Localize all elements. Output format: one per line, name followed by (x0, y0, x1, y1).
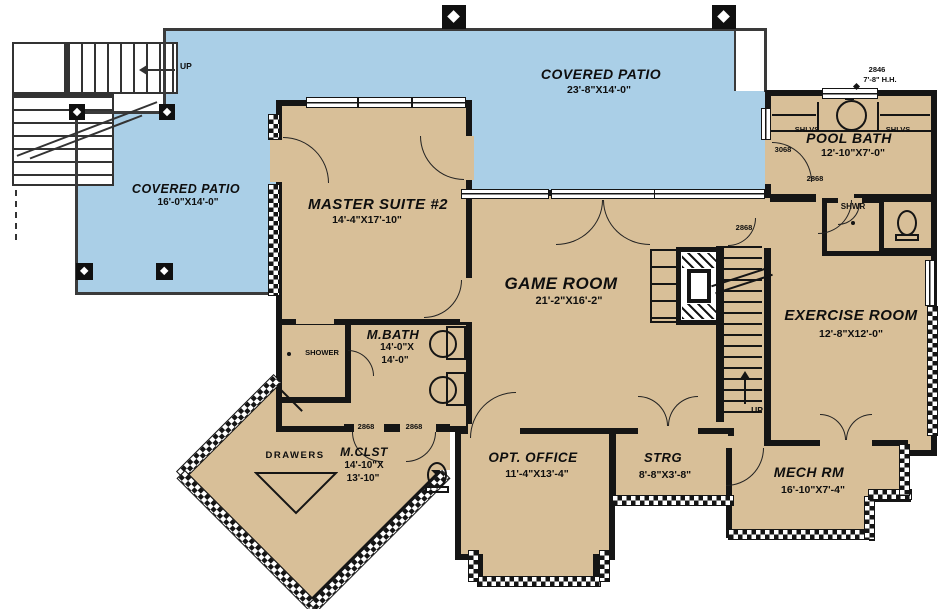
label-storage: STRG (644, 451, 682, 464)
floor-plan: UP (0, 0, 950, 609)
opening-storage-doors (638, 426, 698, 444)
wall-stub (384, 424, 400, 432)
door-size-label: 3068 (775, 146, 792, 154)
window (822, 88, 878, 99)
shower-head-icon (287, 352, 291, 356)
dims-master-bath-1: 14'-0"X (380, 343, 414, 353)
vanity-divider (877, 102, 879, 130)
column-post (69, 104, 85, 120)
fireplace-hatch (682, 304, 716, 319)
toilet-icon (427, 462, 447, 488)
patio-corner-notch (734, 31, 767, 91)
label-shlvs-right: SHLVS (886, 126, 910, 134)
window (653, 189, 765, 199)
dims-master-bath-2: 14'-0" (381, 356, 408, 366)
opening-master-left-door (270, 140, 284, 182)
checker-wall (477, 576, 601, 587)
stair-landing (12, 42, 66, 94)
toilet-icon (425, 486, 449, 493)
window (306, 97, 466, 108)
mech-corner-cut (869, 496, 911, 541)
drain-icon (851, 221, 855, 225)
fireplace-box (687, 269, 711, 303)
up-arrow-icon (740, 371, 750, 379)
dims-storage: 8'-8"X3'-8" (639, 470, 691, 481)
checker-wall (268, 114, 280, 140)
up-label: UP (180, 62, 192, 71)
door-size-label: 2868 (736, 224, 753, 232)
door-size-label: 2868 (406, 423, 423, 431)
label-master-bath: M.BATH (367, 328, 420, 341)
checker-wall (468, 550, 479, 582)
checker-wall (864, 496, 875, 540)
wall-stub (344, 424, 354, 432)
sink-icon (836, 100, 867, 131)
dims-mech-room: 16'-10"X7'-4" (781, 485, 845, 496)
column-post (76, 263, 93, 280)
column-post (712, 5, 736, 29)
shelf-line (880, 114, 930, 116)
label-covered-patio-left: COVERED PATIO (132, 183, 240, 196)
window-mullion (411, 97, 413, 108)
checker-wall (268, 184, 280, 296)
dims-pool-bath: 12'-10"X7'-0" (821, 148, 885, 159)
window-size-label: 2846 (869, 66, 886, 74)
patio-edge (764, 28, 767, 92)
door-size-label: 2868 (807, 175, 824, 183)
window-head-height-label: 7'-8" H.H. (863, 76, 896, 84)
poolbath-bottom-wall (854, 194, 932, 202)
sink-icon (429, 376, 457, 404)
poolbath-bottom-wall (770, 194, 816, 202)
opening-bay (483, 552, 593, 562)
window (461, 189, 549, 199)
column-post (159, 104, 175, 120)
window (925, 260, 935, 306)
label-shlvs-left: SHLVS (795, 126, 819, 134)
column-post (156, 263, 173, 280)
window-mullion (357, 97, 359, 108)
up-arrow-line (744, 378, 746, 404)
shower-room (281, 319, 351, 403)
label-master-suite: MASTER SUITE #2 (308, 197, 448, 212)
label-exercise-room: EXERCISE ROOM (784, 308, 917, 323)
stair-wall (716, 246, 724, 422)
opening-hall-poolbath (760, 198, 776, 248)
dims-covered-patio-top: 23'-8"X14'-0" (567, 85, 631, 96)
dims-covered-patio-left: 16'-0"X14'-0" (158, 198, 219, 208)
stair-dashed-line (15, 190, 17, 240)
label-mech-room: MECH RM (774, 465, 844, 479)
window (761, 108, 771, 140)
room-opt-office (455, 428, 615, 560)
column-post (442, 5, 466, 29)
stair-flight-upper (66, 42, 178, 94)
up-arrow-line (147, 69, 175, 71)
checker-wall (899, 444, 910, 496)
wall-stub (436, 424, 450, 432)
patio-edge (75, 111, 166, 114)
wc-niche-wall (884, 248, 932, 256)
checker-wall (599, 550, 610, 582)
up-arrow-icon (139, 65, 147, 75)
dims-game-room: 21'-2"X16'-2" (535, 296, 602, 307)
fireplace-hatch (682, 253, 716, 268)
label-opt-office: OPT. OFFICE (488, 451, 577, 465)
stair-flight-lower (12, 94, 114, 186)
label-drawers: DRAWERS (265, 451, 324, 461)
patio-edge (75, 292, 278, 295)
opening-master-game (460, 278, 474, 322)
label-shower: SHOWER (305, 349, 339, 357)
toilet-icon (895, 234, 919, 241)
fireplace-shelves (650, 249, 678, 323)
shelf-line (772, 114, 816, 116)
checker-wall (612, 495, 734, 506)
label-covered-patio-top: COVERED PATIO (541, 67, 661, 81)
up-label: UP (751, 406, 763, 415)
dims-master-closet-1: 14'-10"X (344, 461, 383, 471)
dims-exercise-room: 12'-8"X12'-0" (819, 329, 883, 340)
patio-door-sill (551, 189, 655, 199)
opening-mech-door (726, 436, 764, 448)
toilet-icon (897, 210, 917, 236)
door-size-label: 2868 (358, 423, 375, 431)
label-master-closet: M.CLST (340, 446, 388, 458)
drawers-island (254, 466, 338, 516)
patio-edge (163, 28, 166, 114)
label-shwr: SHWR (841, 203, 865, 211)
sink-icon (429, 330, 457, 358)
checker-wall (927, 306, 938, 436)
label-game-room: GAME ROOM (504, 275, 617, 292)
dims-master-suite: 14'-4"X17'-10" (332, 215, 402, 226)
dims-opt-office: 11'-4"X13'-4" (505, 469, 568, 480)
dims-master-closet-2: 13'-10" (347, 474, 380, 484)
checker-wall (728, 529, 870, 540)
